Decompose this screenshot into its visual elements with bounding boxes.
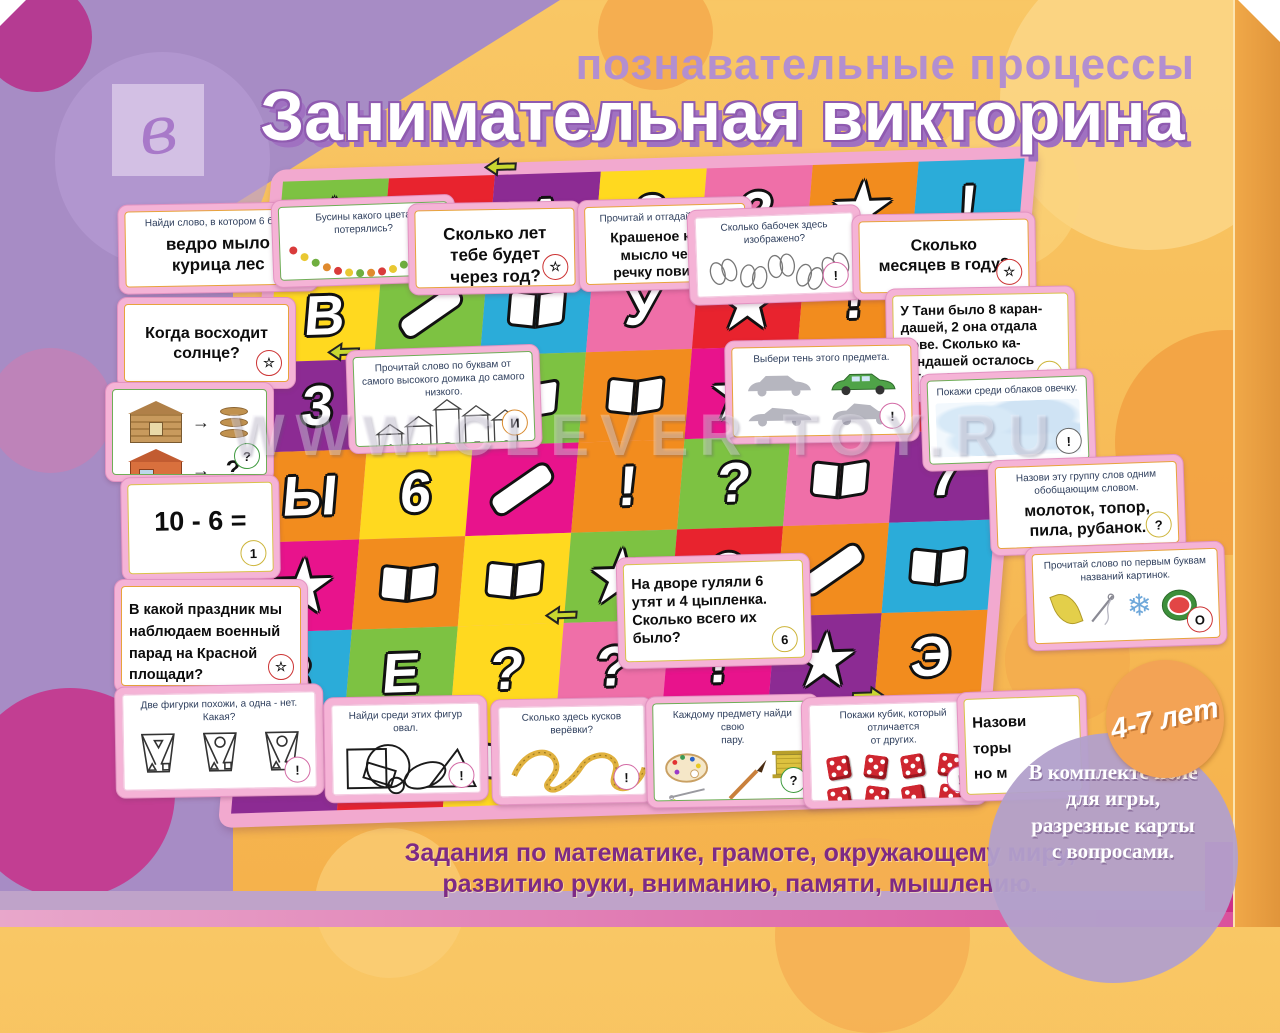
card-title: Прочитай слово по буквам от самого высок… [361,357,526,402]
card-title: Найди среди этих фигур овал. [338,708,472,736]
board-glyph: ? [714,454,753,511]
star-icon: ☆ [268,654,294,680]
age-badge: 4-7 лет [1106,660,1224,778]
arrow-icon: → [192,412,210,433]
corner-highlight [0,0,26,26]
svg-text:С: С [502,438,510,447]
snowflake-picture: ❄ [1126,591,1152,622]
card-first-letters: Прочитай слово по первым буквам названий… [1024,541,1228,652]
game-title: Занимательная викторина [235,76,1210,156]
book-icon [378,564,439,602]
board-cell: Э [874,610,987,704]
question-icon: ? [234,443,260,469]
book-icon [506,290,567,328]
card-body: В какой праздник мы наблюдаем военный па… [129,600,293,686]
board-glyph: 3 [300,377,336,434]
board-glyph: Е [380,645,422,702]
svg-text:Е: Е [474,439,481,447]
leaf-picture [1050,589,1084,629]
analogy-row: → [130,401,259,443]
exclamation-icon: ! [284,756,310,782]
card-body: Сколько лет тебе будет через год? [423,222,568,288]
card-body: 10 - 6 = [136,504,266,540]
card-group-word: Назови эту группу слов одним обобщающим … [987,454,1186,557]
star-icon: ☆ [996,259,1022,285]
card-ropes: Сколько здесь кусков верёвки? ! [490,697,654,806]
book-icon [484,561,545,599]
svg-text:Н: Н [416,441,424,447]
board-glyph: 6 [398,464,434,521]
publisher-logo: в [112,84,204,176]
card-title: Две фигурки похожи, а одна - нет. Какая? [129,696,308,725]
book-icon [809,460,870,498]
card-parade: В какой праздник мы наблюдаем военный па… [114,579,308,693]
card-clouds-sheep: Покажи среди облаков овечку. ! [919,368,1096,472]
board-cell: ? [677,436,790,530]
number-6-icon: 6 [771,626,798,653]
card-title: Покажи кубик, который отличается от друг… [816,706,971,749]
board-cell [465,443,578,537]
number-1-icon: 1 [240,540,266,566]
card-title: Покажи среди облаков овечку. [935,382,1079,400]
card-butterflies: Сколько бабочек здесь изображено? ! [686,204,863,306]
crayon-icon [486,458,558,520]
board-cell: 6 [359,446,472,540]
book-icon [908,547,969,585]
card-find-oval: Найди среди этих фигур овал. ! [323,695,489,804]
board-cell [783,433,896,527]
figures-picture [130,726,310,777]
card-subtraction: 10 - 6 = 1 [120,475,281,582]
board-glyph: Ы [280,467,339,525]
board-cell: ! [571,439,684,533]
box-side-edge [1233,0,1280,927]
path-arrow-icon [544,605,580,626]
logs-picture [220,407,248,438]
board-cell [352,536,465,630]
age-badge-text: 4-7 лет [1108,691,1222,746]
kit-note-badge: В комплекте поле для игры, разрезные кар… [988,733,1238,983]
path-arrow-icon [483,156,519,177]
board-glyph: ? [488,641,527,698]
card-pairs: Каждому предмету найди свою пару. ? [645,693,821,808]
svg-text:А: А [387,442,395,447]
board-cell [579,349,692,443]
card-title: Сколько бабочек здесь изображено? [702,218,847,249]
card-title: Выбери тень этого предмета. [739,351,903,367]
card-title: Назови эту группу слов одним обобщающим … [1003,467,1170,499]
needle-picture [1086,587,1119,628]
card-ducklings: На дворе гуляли 6 утят и 4 цыпленка. Ско… [616,552,813,669]
card-age-next-year: Сколько лет тебе будет через год? ☆ [407,200,583,295]
board-glyph: ! [616,458,639,515]
brick-house-picture [130,461,182,475]
arrow-icon: → [192,460,210,476]
star-icon: ☆ [256,350,282,376]
card-sunrise: Когда восходит солнце? ☆ [117,297,296,389]
card-car-shadow: Выбери тень этого предмета. ! [724,337,920,444]
board-glyph: Э [909,628,953,685]
first-letters-pictures: ❄ [1041,584,1212,630]
letter-icon: О [1186,606,1213,633]
card-title: Каждому предмету найди свою пару. [660,707,805,749]
card-house-analogy: → → ? ? [105,382,274,482]
card-letter-houses: Прочитай слово по буквам от самого высок… [345,344,543,455]
board-cell [882,519,995,613]
card-similar-figures: Две фигурки похожи, а одна - нет. Какая?… [114,683,325,799]
card-title: Прочитай слово по первым буквам названий… [1040,554,1211,586]
svg-text:В: В [445,440,453,447]
publisher-logo-letter: в [135,90,181,171]
book-icon [605,377,666,415]
card-title: Сколько здесь кусков верёвки? [505,710,637,738]
board-glyph: В [302,287,347,344]
log-house-picture [130,413,182,443]
corner-highlight [1238,0,1280,42]
